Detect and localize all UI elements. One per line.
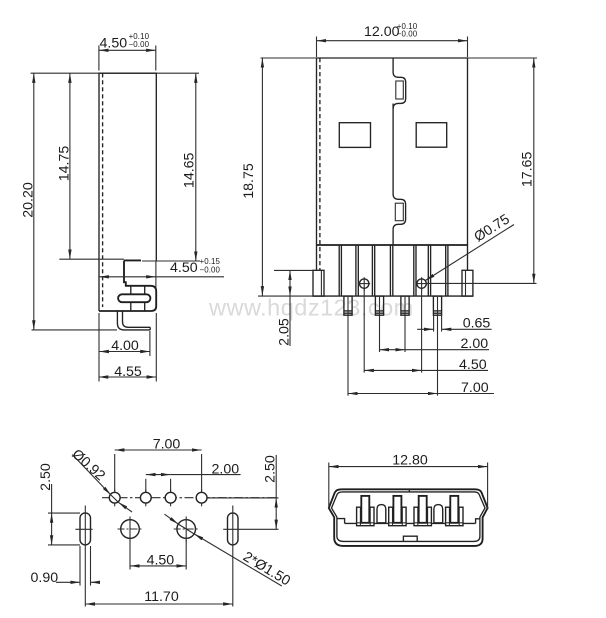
svg-text:12.00: 12.00 bbox=[364, 24, 400, 40]
svg-text:11.70: 11.70 bbox=[144, 589, 179, 605]
svg-text:Ø0.75: Ø0.75 bbox=[471, 211, 512, 245]
svg-text:4.55: 4.55 bbox=[114, 364, 142, 380]
svg-text:7.00: 7.00 bbox=[153, 437, 181, 453]
svg-text:www.hqdz123.com: www.hqdz123.com bbox=[208, 295, 414, 321]
svg-text:2.50: 2.50 bbox=[38, 463, 54, 491]
svg-text:20.20: 20.20 bbox=[21, 182, 37, 218]
svg-text:4.50: 4.50 bbox=[147, 553, 175, 569]
svg-text:14.75: 14.75 bbox=[57, 146, 73, 182]
svg-text:7.00: 7.00 bbox=[461, 380, 489, 396]
svg-text:−0.00: −0.00 bbox=[200, 265, 221, 274]
svg-text:12.80: 12.80 bbox=[392, 453, 428, 469]
svg-text:18.75: 18.75 bbox=[241, 163, 257, 199]
svg-text:Ø0.92: Ø0.92 bbox=[69, 446, 109, 484]
svg-text:0.90: 0.90 bbox=[31, 570, 59, 586]
svg-text:4.50: 4.50 bbox=[100, 35, 128, 51]
svg-text:4.50: 4.50 bbox=[459, 357, 487, 373]
svg-text:2.00: 2.00 bbox=[461, 336, 489, 352]
svg-text:2*Ø1.50: 2*Ø1.50 bbox=[240, 549, 293, 590]
svg-text:2.05: 2.05 bbox=[276, 318, 292, 346]
svg-text:4.50: 4.50 bbox=[170, 260, 198, 276]
svg-text:−0.00: −0.00 bbox=[129, 40, 150, 49]
svg-text:14.65: 14.65 bbox=[182, 152, 198, 188]
svg-text:−0.00: −0.00 bbox=[397, 30, 418, 39]
svg-text:2.00: 2.00 bbox=[212, 461, 240, 477]
svg-text:2.50: 2.50 bbox=[262, 455, 278, 483]
svg-text:0.65: 0.65 bbox=[463, 316, 491, 332]
svg-text:4.00: 4.00 bbox=[111, 338, 139, 354]
svg-text:17.65: 17.65 bbox=[519, 152, 535, 188]
